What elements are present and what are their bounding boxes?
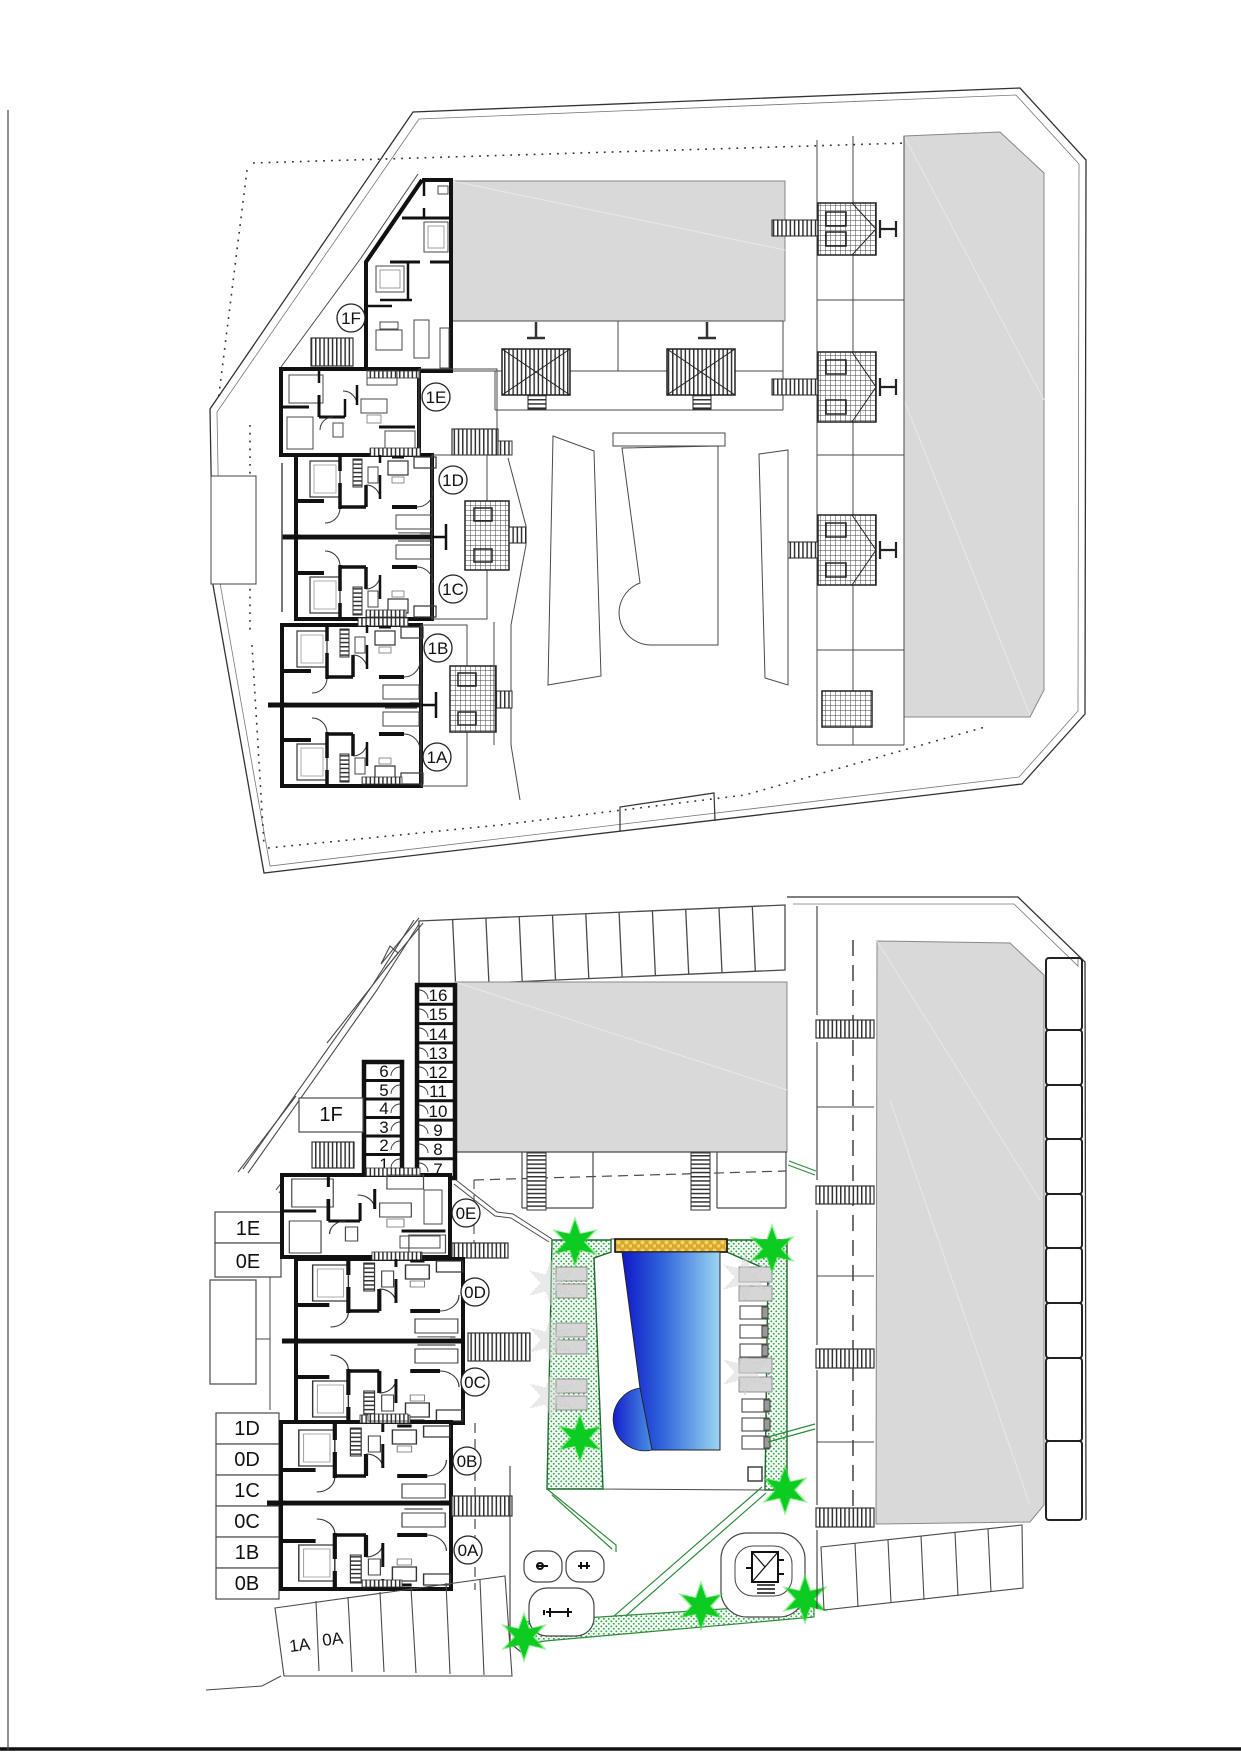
svg-text:13: 13: [429, 1044, 448, 1063]
svg-text:1D: 1D: [234, 1418, 260, 1440]
svg-text:1D: 1D: [442, 471, 464, 490]
svg-text:0D: 0D: [464, 1283, 486, 1302]
svg-text:0E: 0E: [236, 1251, 260, 1273]
svg-text:3: 3: [379, 1118, 388, 1137]
svg-text:1E: 1E: [236, 1218, 260, 1240]
svg-text:11: 11: [429, 1082, 447, 1101]
svg-text:6: 6: [379, 1062, 388, 1081]
svg-text:0C: 0C: [234, 1511, 260, 1533]
svg-text:12: 12: [429, 1063, 448, 1082]
svg-text:0A: 0A: [321, 1628, 345, 1649]
svg-text:16: 16: [429, 986, 448, 1005]
svg-text:5: 5: [379, 1081, 388, 1100]
svg-text:14: 14: [429, 1025, 448, 1044]
svg-text:2: 2: [379, 1136, 388, 1155]
svg-text:4: 4: [379, 1099, 388, 1118]
svg-text:1F: 1F: [341, 309, 361, 328]
svg-text:1E: 1E: [426, 388, 447, 407]
svg-text:8: 8: [433, 1140, 442, 1159]
svg-text:9: 9: [433, 1121, 442, 1140]
svg-text:15: 15: [429, 1005, 448, 1024]
svg-text:1A: 1A: [427, 748, 448, 767]
svg-text:0E: 0E: [456, 1204, 477, 1223]
svg-text:0A: 0A: [458, 1541, 479, 1560]
svg-text:10: 10: [429, 1102, 448, 1121]
svg-text:1C: 1C: [442, 580, 464, 599]
svg-text:0C: 0C: [464, 1373, 486, 1392]
svg-text:0B: 0B: [235, 1573, 259, 1595]
svg-text:1B: 1B: [428, 639, 449, 658]
svg-text:0B: 0B: [457, 1452, 478, 1471]
svg-text:0D: 0D: [234, 1449, 260, 1471]
svg-text:1F: 1F: [319, 1104, 342, 1126]
svg-text:1C: 1C: [234, 1480, 260, 1502]
svg-text:1A: 1A: [288, 1634, 312, 1655]
svg-text:1B: 1B: [235, 1542, 259, 1564]
